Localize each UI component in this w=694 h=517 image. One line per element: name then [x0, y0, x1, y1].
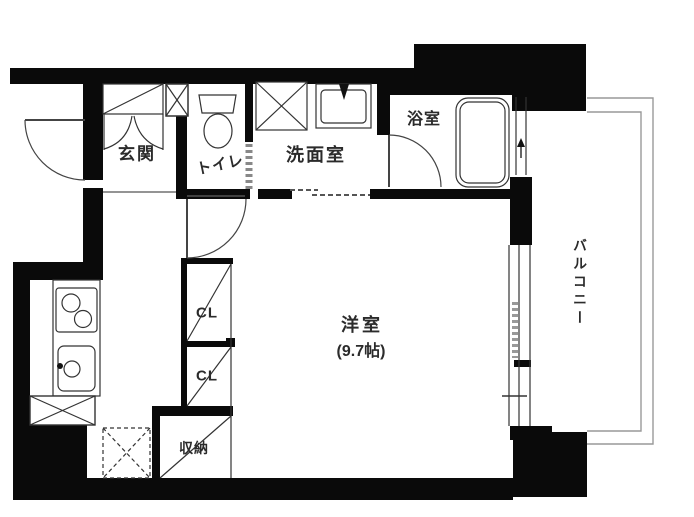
washbasin	[316, 84, 371, 128]
kitchen-counter	[53, 280, 100, 396]
room-label-bathroom: 浴室	[407, 105, 441, 129]
wall-bath-top	[377, 68, 414, 95]
room-label-western-room: 洋室	[341, 311, 383, 337]
window-sash-stop	[514, 360, 531, 367]
floor-plan: 玄関 トイレ 洗面室 浴室 洋室 (9.7帖) バルコニー CL CL 収納	[0, 0, 694, 517]
wall-closet-top	[181, 258, 233, 264]
wall-window-pier	[510, 177, 532, 245]
room-label-storage: 収納	[179, 438, 209, 458]
stove-burner-2	[75, 311, 92, 328]
wall-bath-divider	[377, 95, 390, 135]
wall-left-upper	[83, 83, 103, 180]
wall-room-north-3	[370, 189, 512, 199]
wall-closet-divider	[181, 341, 233, 347]
wall-window-sill	[510, 426, 552, 440]
wall-bottom	[13, 478, 513, 500]
stove-burner-1	[62, 294, 80, 312]
room-label-closet-2: CL	[196, 368, 218, 385]
room-label-genkan: 玄関	[118, 140, 156, 165]
sink-drain	[64, 361, 80, 377]
appliance-space-dashed	[103, 428, 150, 478]
wall-storage-left	[152, 406, 160, 478]
washing-machine-pan	[256, 82, 307, 130]
room-label-balcony: バルコニー	[570, 238, 590, 328]
sink-faucet	[57, 363, 63, 369]
wall-toilet-left	[176, 116, 187, 196]
wall-toilet-right	[245, 84, 253, 142]
wall-left-upper2	[83, 188, 103, 262]
room-label-washroom: 洗面室	[286, 141, 346, 167]
appliance-space-solid	[30, 396, 95, 425]
wall-storage-top	[152, 406, 233, 416]
wall-room-north-2	[258, 189, 292, 199]
wall-top	[10, 68, 416, 84]
room-label-western-room-size: (9.7帖)	[337, 337, 386, 361]
room-label-closet-1: CL	[196, 305, 218, 322]
wall-bottom-right-block	[513, 432, 587, 497]
wall-closet-left	[181, 258, 187, 406]
pipe-shaft-box	[166, 84, 188, 116]
bathtub	[456, 98, 509, 187]
wall-room-north-1	[176, 189, 250, 199]
wall-left-step	[13, 262, 103, 280]
